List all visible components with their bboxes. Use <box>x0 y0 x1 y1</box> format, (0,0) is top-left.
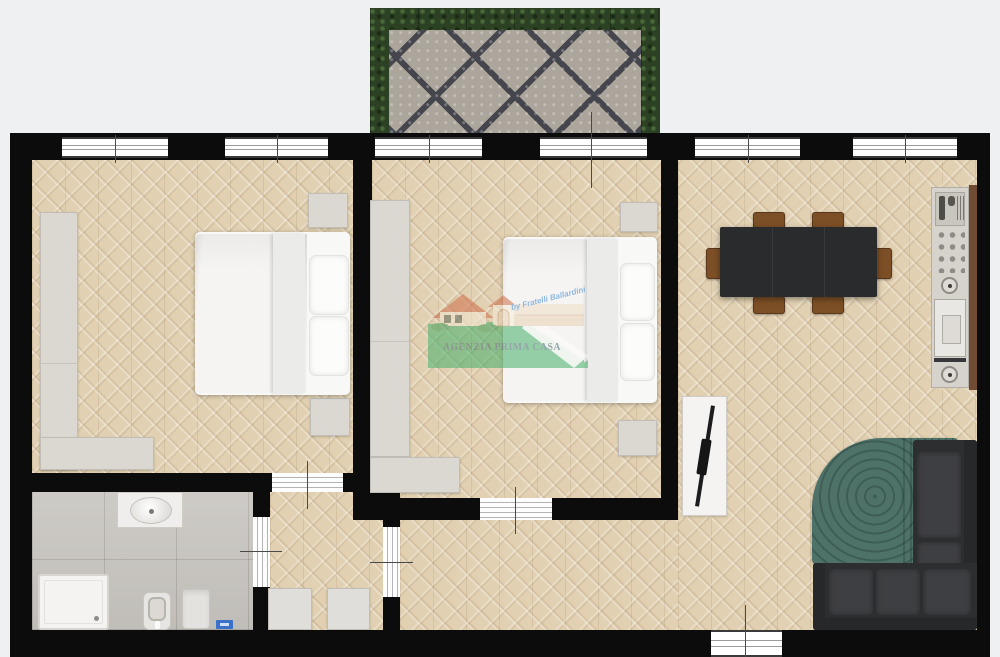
drainer <box>957 196 964 220</box>
shower-tray <box>38 574 109 630</box>
logo-house-window <box>444 315 451 323</box>
centerline-door-bathroom <box>240 551 282 552</box>
terrace-hedge-left <box>370 25 389 133</box>
toilet-flush <box>155 621 160 629</box>
radiator-panel <box>682 396 727 516</box>
nightstand-bedroom1-bottom <box>310 398 350 436</box>
wall-left <box>10 133 32 640</box>
centerline-door-bedroom1 <box>307 461 308 509</box>
logo-bush <box>477 324 499 332</box>
wall-bedroom1-bottom-right <box>343 473 372 492</box>
sofa-armrest <box>813 563 825 630</box>
folded-blanket <box>273 234 305 393</box>
agency-watermark-logo: by Fratelli Ballardini AGENZIA PRIMA CAS… <box>426 282 592 372</box>
sofa-cushion <box>876 569 920 615</box>
nightstand-bedroom2-top <box>620 202 658 232</box>
toilet-bowl <box>148 597 166 621</box>
sofa-cushion <box>829 569 873 615</box>
bathroom-scale <box>216 620 233 629</box>
window-bedroom1-left <box>62 137 168 158</box>
wardrobe-horizontal-bedroom2 <box>370 457 460 493</box>
dining-chair <box>812 296 844 314</box>
wardrobe-seam <box>371 341 409 342</box>
watermark-agency-name: AGENZIA PRIMA CASA <box>443 341 561 353</box>
logo-garage-door <box>514 315 584 326</box>
logo-house-window <box>455 315 462 323</box>
pillow <box>309 316 349 376</box>
wardrobe-horizontal-bedroom1 <box>40 437 154 470</box>
window-living-bottom <box>711 630 782 657</box>
nightstand-bedroom2-bottom <box>618 420 657 456</box>
floor-plan-canvas: by Fratelli Ballardini AGENZIA PRIMA CAS… <box>0 0 1000 657</box>
centerline-window-bedroom2 <box>591 112 592 188</box>
logo-arch-door <box>498 310 509 327</box>
window-center-tick <box>429 135 430 163</box>
window-bedroom1-right <box>225 137 328 158</box>
sink-drain <box>948 284 952 288</box>
sink-round <box>941 366 958 383</box>
dining-table <box>720 227 877 297</box>
centerline-door-bedroom2 <box>515 487 516 534</box>
centerline-door-hallway <box>370 562 413 563</box>
wardrobe-seam <box>41 363 77 364</box>
bidet <box>182 589 210 629</box>
pillow <box>309 255 349 315</box>
wall-hallway-right-bottom <box>383 597 400 630</box>
wall-bedroom2-living <box>661 160 678 520</box>
wall-bedroom2-bottom-right <box>552 498 678 520</box>
sofa-backrest <box>813 618 977 630</box>
pillow <box>620 263 655 321</box>
window-living-right <box>853 137 957 158</box>
dining-chair <box>753 296 785 314</box>
shower-drain <box>94 616 99 621</box>
terrace-hedge-right <box>641 25 660 133</box>
door-bathroom-sliding <box>253 517 270 587</box>
window-center-tick <box>115 135 116 163</box>
wardrobe-vertical-bedroom1 <box>40 212 78 470</box>
window-center-tick <box>905 135 906 163</box>
pillow <box>620 323 655 381</box>
window-center-tick <box>748 135 749 163</box>
wall-bedroom1-bottom-left <box>10 473 272 492</box>
wall-bottom <box>10 630 990 657</box>
wall-right <box>977 133 990 640</box>
sofa-horizontal-section <box>813 563 977 630</box>
sink-round <box>941 277 958 294</box>
oven-window <box>942 315 961 344</box>
wall-bathroom-right-top <box>253 492 270 517</box>
knob-panel <box>936 229 965 273</box>
sink-drain <box>149 509 154 514</box>
nightstand-bedroom1-top <box>308 193 348 228</box>
window-bedroom2-right <box>540 137 647 158</box>
cooktop-grate <box>948 196 955 206</box>
living-room-floor-extension <box>400 520 678 630</box>
kitchen-back-panel <box>969 185 977 390</box>
scale-display <box>220 623 229 626</box>
double-bed-bedroom1 <box>195 232 350 395</box>
toilet <box>143 592 171 630</box>
logo-bush <box>431 323 449 331</box>
vanity-counter <box>117 492 183 528</box>
wall-junction-hallway <box>372 492 400 520</box>
cooktop <box>935 192 965 226</box>
sofa-cushion <box>917 452 961 538</box>
wardrobe-vertical-bedroom2 <box>370 200 410 457</box>
radiator-center-knob <box>696 438 712 475</box>
window-living-left <box>695 137 800 158</box>
window-bedroom2-left <box>375 137 482 158</box>
oven-handle <box>934 358 966 362</box>
wall-hallway-right-top <box>383 520 400 527</box>
sink-oval <box>130 497 172 524</box>
sofa-cushion <box>923 569 971 615</box>
hallway-cabinet <box>327 588 370 630</box>
terrace-paving <box>389 30 641 133</box>
window-center-tick <box>277 135 278 163</box>
hallway-cabinet <box>268 588 312 630</box>
centerline-window-bottom <box>745 605 746 657</box>
cooktop-grate <box>939 196 945 220</box>
kitchen-counter <box>931 187 969 388</box>
door-bedroom2 <box>480 498 552 520</box>
oven <box>934 299 966 357</box>
sink-drain <box>948 373 952 377</box>
